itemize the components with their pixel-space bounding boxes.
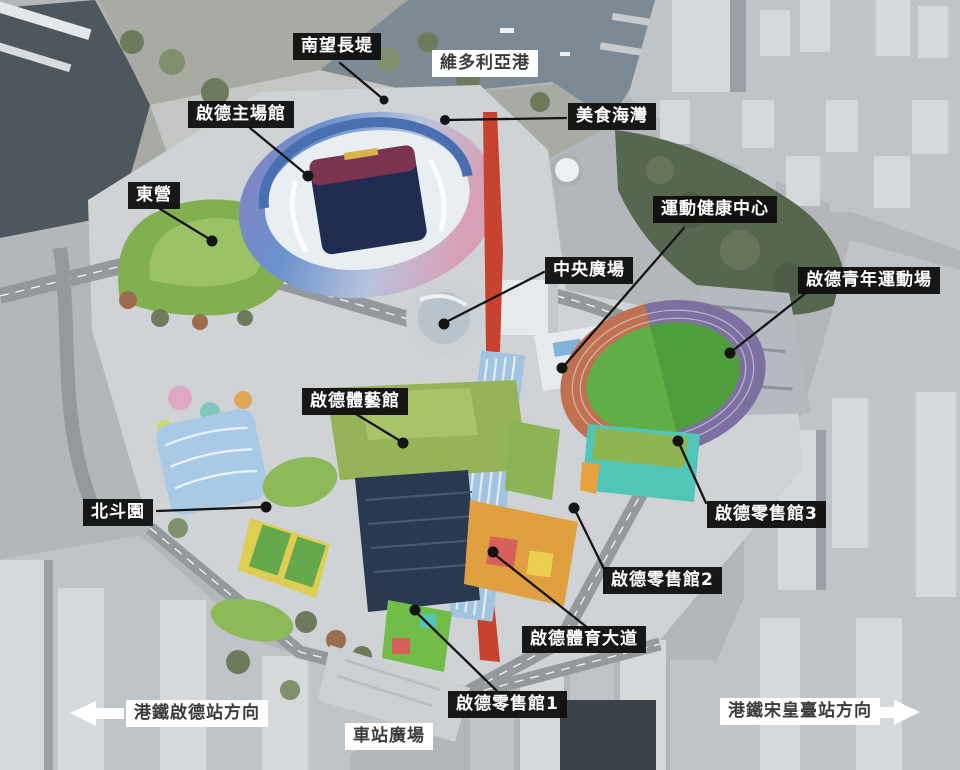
label-main-stadium: 啟德主場館 bbox=[188, 101, 294, 128]
pointer-line-health-centre bbox=[563, 228, 684, 367]
aerial-map: 南望長堤 維多利亞港 啟德主場館 美食海灣 東營 運動健康中心 中央廣場 啟德青… bbox=[0, 0, 960, 770]
label-mtr-sung-wong-toi-direction: 港鐵宋皇臺站方向 bbox=[720, 698, 880, 725]
label-youth-sports-ground: 啟德青年運動場 bbox=[798, 267, 940, 294]
pointer-dot-main-stadium bbox=[303, 171, 314, 182]
label-health-centre: 運動健康中心 bbox=[653, 196, 777, 223]
pointer-line-central-plaza bbox=[446, 272, 544, 322]
label-east-camp: 東營 bbox=[128, 182, 180, 209]
pointer-dot-pak-tau bbox=[261, 502, 272, 513]
pointer-line-main-stadium bbox=[250, 128, 307, 175]
pointer-dot-sports-avenue bbox=[488, 547, 499, 558]
pointer-dot-food-bay bbox=[440, 115, 450, 125]
pointer-dot-retail-3 bbox=[673, 436, 684, 447]
pointer-line-sports-avenue bbox=[494, 554, 588, 628]
label-station-square: 車站廣場 bbox=[345, 723, 433, 750]
pointer-line-food-bay bbox=[447, 118, 566, 120]
label-mtr-kai-tak-direction: 港鐵啟德站方向 bbox=[126, 700, 268, 727]
label-retail-3: 啟德零售館3 bbox=[707, 501, 826, 528]
pointer-dot-youth-ground bbox=[725, 348, 736, 359]
pointer-dot-arena bbox=[398, 438, 409, 449]
pointer-line-pak-tau bbox=[157, 507, 264, 511]
pointer-line-east-camp bbox=[160, 209, 211, 240]
label-sports-avenue: 啟德體育大道 bbox=[522, 626, 646, 653]
left-arrow-icon bbox=[70, 701, 124, 726]
pointer-line-youth-ground bbox=[731, 293, 806, 352]
pointer-dot-nam-mong bbox=[380, 96, 389, 105]
label-victoria-harbour: 維多利亞港 bbox=[432, 50, 538, 77]
pointer-dot-health-centre bbox=[557, 363, 568, 374]
right-arrow-icon bbox=[874, 700, 920, 725]
label-pak-tau-garden: 北斗園 bbox=[83, 499, 153, 526]
label-retail-2: 啟德零售館2 bbox=[603, 567, 722, 594]
pointer-dot-retail-2 bbox=[569, 503, 580, 514]
annotation-overlay bbox=[0, 0, 960, 770]
pointer-line-retail-3 bbox=[679, 443, 706, 503]
pointer-dot-east-camp bbox=[207, 236, 218, 247]
pointer-line-retail-1 bbox=[416, 612, 497, 691]
label-retail-1: 啟德零售館1 bbox=[448, 691, 567, 718]
pointer-line-arena bbox=[356, 414, 402, 442]
label-food-bay: 美食海灣 bbox=[568, 103, 656, 130]
label-arena: 啟德體藝館 bbox=[302, 388, 408, 415]
pointer-line-retail-2 bbox=[575, 510, 604, 569]
label-nam-mong-promenade: 南望長堤 bbox=[293, 33, 381, 60]
label-central-plaza: 中央廣場 bbox=[545, 257, 633, 284]
pointer-line-nam-mong bbox=[340, 63, 383, 99]
pointer-dot-central-plaza bbox=[439, 319, 450, 330]
pointer-dot-retail-1 bbox=[410, 605, 421, 616]
